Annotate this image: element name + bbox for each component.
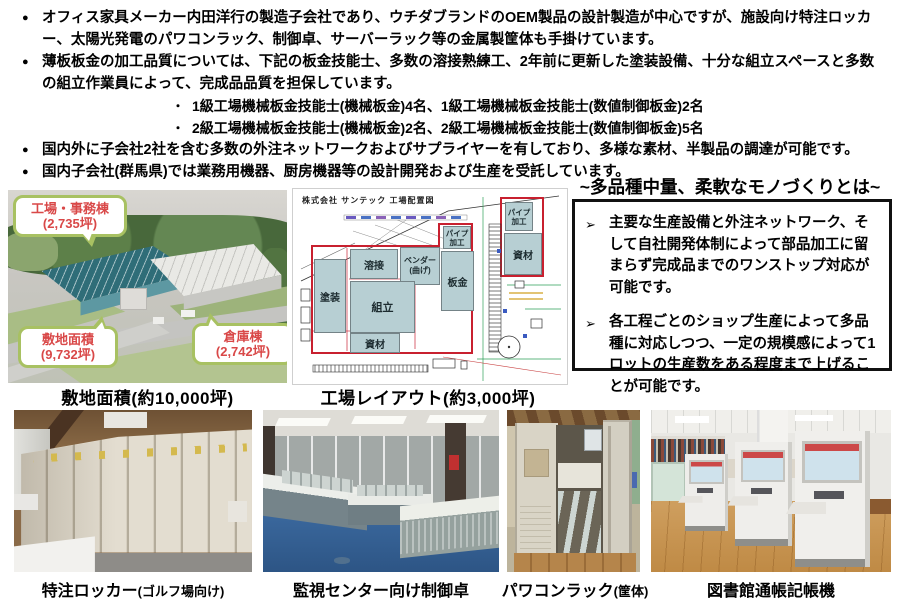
photo-caption-rack: パワコンラック(筐体)	[480, 577, 670, 601]
wall-sign	[449, 455, 458, 470]
caption-main: 特注ロッカー	[42, 583, 138, 600]
bullet-icon: ●	[22, 139, 29, 161]
callout-tail-fill	[82, 233, 92, 241]
door-window	[524, 449, 549, 477]
highlight-box: ➢ 主要な生産設備と外注ネットワーク、そして自社開発体制によって部品加工に留まら…	[572, 199, 892, 371]
skylight	[104, 412, 147, 428]
callout-warehouse: 倉庫棟 (2,742坪)	[192, 323, 287, 365]
kiosk-screen	[802, 441, 862, 484]
manhole-cover	[334, 557, 351, 563]
room-bender: ベンダー (曲げ)	[400, 247, 440, 285]
library-kiosk-photo	[651, 410, 891, 572]
list-item-text: 薄板板金の加工品質については、下記の板金技能士、多数の溶接熟練工、2年前に更新し…	[42, 54, 874, 92]
callout-name: 倉庫棟	[223, 329, 262, 344]
truck	[181, 310, 195, 318]
list-item-text: 国内子会社(群馬県)では業務用機器、厨房機器等の設計開発および生産を受託していま…	[42, 164, 630, 180]
callout-tail-fill	[208, 319, 218, 327]
layout-diagram-title: 株式会社 サンテック 工場配置図	[302, 195, 434, 206]
room-sheet-metal: 板金	[441, 251, 474, 311]
kiosk	[685, 454, 729, 532]
console-monitor-rack	[357, 485, 423, 496]
ceiling-light	[675, 416, 709, 422]
factory-layout-diagram: 株式会社 サンテック 工場配置図 塗装 溶接 ベンダー (曲げ) パイプ 加工 …	[292, 188, 568, 385]
room-assembly: 組立	[350, 281, 415, 333]
aerial-caption: 敷地面積(約10,000坪)	[8, 384, 287, 409]
kiosk-screen	[689, 460, 724, 484]
callout-value: (2,742坪)	[216, 344, 270, 359]
room-materials: 資材	[350, 333, 400, 353]
ceiling-light	[275, 418, 331, 426]
kiosk	[795, 431, 870, 567]
highlight-point-text: 主要な生産設備と外注ネットワーク、そして自社開発体制によって部品加工に留まらず完…	[609, 213, 877, 299]
layout-caption: 工場レイアウト(約3,000坪)	[288, 384, 568, 409]
kiosk-base	[735, 539, 788, 546]
ceiling-light	[351, 416, 407, 424]
truck	[153, 317, 164, 324]
hill-left	[8, 232, 58, 271]
caption-main: 監視センター向け制御卓	[293, 583, 469, 600]
highlight-title: ~多品種中量、柔軟なモノづくりとは~	[563, 174, 897, 199]
photo-caption-kiosk: 図書館通帳記帳機	[651, 577, 891, 601]
callout-value: (2,735坪)	[43, 216, 97, 231]
callout-value: (9,732坪)	[41, 347, 95, 362]
photo-caption-locker: 特注ロッカー(ゴルフ場向け)	[14, 577, 252, 601]
photo-caption-console: 監視センター向け制御卓	[263, 577, 499, 601]
caption-main: パワコンラック	[502, 583, 614, 600]
kiosk-screen	[741, 450, 785, 482]
factory-aerial-photo: 工場・事務棟 (2,735坪) 敷地面積 (9,732坪) 倉庫棟 (2,742…	[8, 190, 287, 383]
list-item: ● 薄板板金の加工品質については、下記の板金技能士、多数の溶接熟練工、2年前に更…	[24, 51, 886, 95]
sub-list-item: ・ 1級工場機械板金技能士(機械板金)4名、1級工場機械板金技能士(数値制御板金…	[24, 95, 886, 117]
room-materials-2: 資材	[504, 233, 542, 275]
highlight-point: ➢ 主要な生産設備と外注ネットワーク、そして自社開発体制によって部品加工に留まら…	[585, 213, 877, 299]
list-item-text: 国内外に子会社2社を含む多数の外注ネットワークおよびサプライヤーを有しており、多…	[42, 142, 859, 158]
company-overview-list: ● オフィス家具メーカー内田洋行の製造子会社であり、ウチダブランドのOEM製品の…	[24, 7, 886, 183]
locker-photo	[14, 410, 252, 572]
callout-name: 敷地面積	[42, 332, 94, 347]
door-vents	[520, 501, 551, 550]
kiosk-base	[685, 526, 726, 531]
control-console-photo	[263, 410, 499, 572]
pawakon-rack-photo	[507, 410, 640, 572]
list-item-text: オフィス家具メーカー内田洋行の製造子会社であり、ウチダブランドのOEM製品の設計…	[42, 10, 871, 48]
highlight-point: ➢ 各工程ごとのショップ生産によって多品種に対応しつつ、一定の規模感によって1ロ…	[585, 312, 877, 398]
room-pipe-processing: パイプ 加工	[443, 226, 471, 249]
side-table	[14, 494, 38, 510]
bullet-icon: ●	[22, 161, 29, 183]
kiosk-base	[795, 559, 865, 567]
kiosk-slot	[751, 488, 772, 494]
door-right-inner-line	[608, 426, 611, 556]
callout-name: 工場・事務棟	[31, 201, 109, 216]
caption-sub: (ゴルフ場向け)	[138, 584, 225, 599]
sub-list-item-text: 2級工場機械板金技能士(機械板金)2名、2級工場機械板金技能士(数値制御板金)5…	[192, 120, 704, 136]
wood-pallet	[514, 553, 636, 572]
sub-list-item-text: 1級工場機械板金技能士(機械板金)4名、1級工場機械板金技能士(数値制御板金)2…	[192, 98, 704, 114]
room-painting: 塗装	[314, 259, 346, 333]
arrow-bullet-icon: ➢	[585, 213, 609, 299]
dot-bullet-icon: ・	[172, 95, 184, 117]
kiosk-tray	[728, 496, 759, 505]
callout-tail-fill	[95, 322, 105, 330]
ceiling-light	[795, 415, 833, 421]
interior-label	[584, 429, 602, 450]
caption-sub: (筐体)	[614, 584, 649, 599]
ceiling-light	[426, 415, 486, 423]
caption-main: 図書館通帳記帳機	[707, 583, 835, 600]
callout-site-area: 敷地面積 (9,732坪)	[18, 326, 118, 368]
interior-shelf	[558, 463, 602, 487]
bullet-icon: ●	[22, 7, 29, 29]
list-item: ● オフィス家具メーカー内田洋行の製造子会社であり、ウチダブランドのOEM製品の…	[24, 7, 886, 51]
kiosk	[735, 442, 792, 546]
rack-slats	[558, 491, 602, 556]
room-pipe-processing-2: パイプ 加工	[505, 202, 533, 231]
kiosk-slot	[697, 488, 713, 493]
office-block	[120, 288, 147, 309]
list-item: ● 国内外に子会社2社を含む多数の外注ネットワークおよびサプライヤーを有しており…	[24, 139, 886, 161]
arrow-bullet-icon: ➢	[585, 312, 609, 398]
kiosk-slot	[814, 491, 843, 499]
room-welding: 溶接	[350, 249, 398, 279]
stool	[228, 501, 247, 522]
dot-bullet-icon: ・	[172, 117, 184, 139]
sub-list-item: ・ 2級工場機械板金技能士(機械板金)2名、2級工場機械板金技能士(数値制御板金…	[24, 117, 886, 139]
callout-factory-office: 工場・事務棟 (2,735坪)	[13, 195, 127, 237]
bullet-icon: ●	[22, 51, 29, 73]
highlight-point-text: 各工程ごとのショップ生産によって多品種に対応しつつ、一定の規模感によって1ロット…	[609, 312, 877, 398]
